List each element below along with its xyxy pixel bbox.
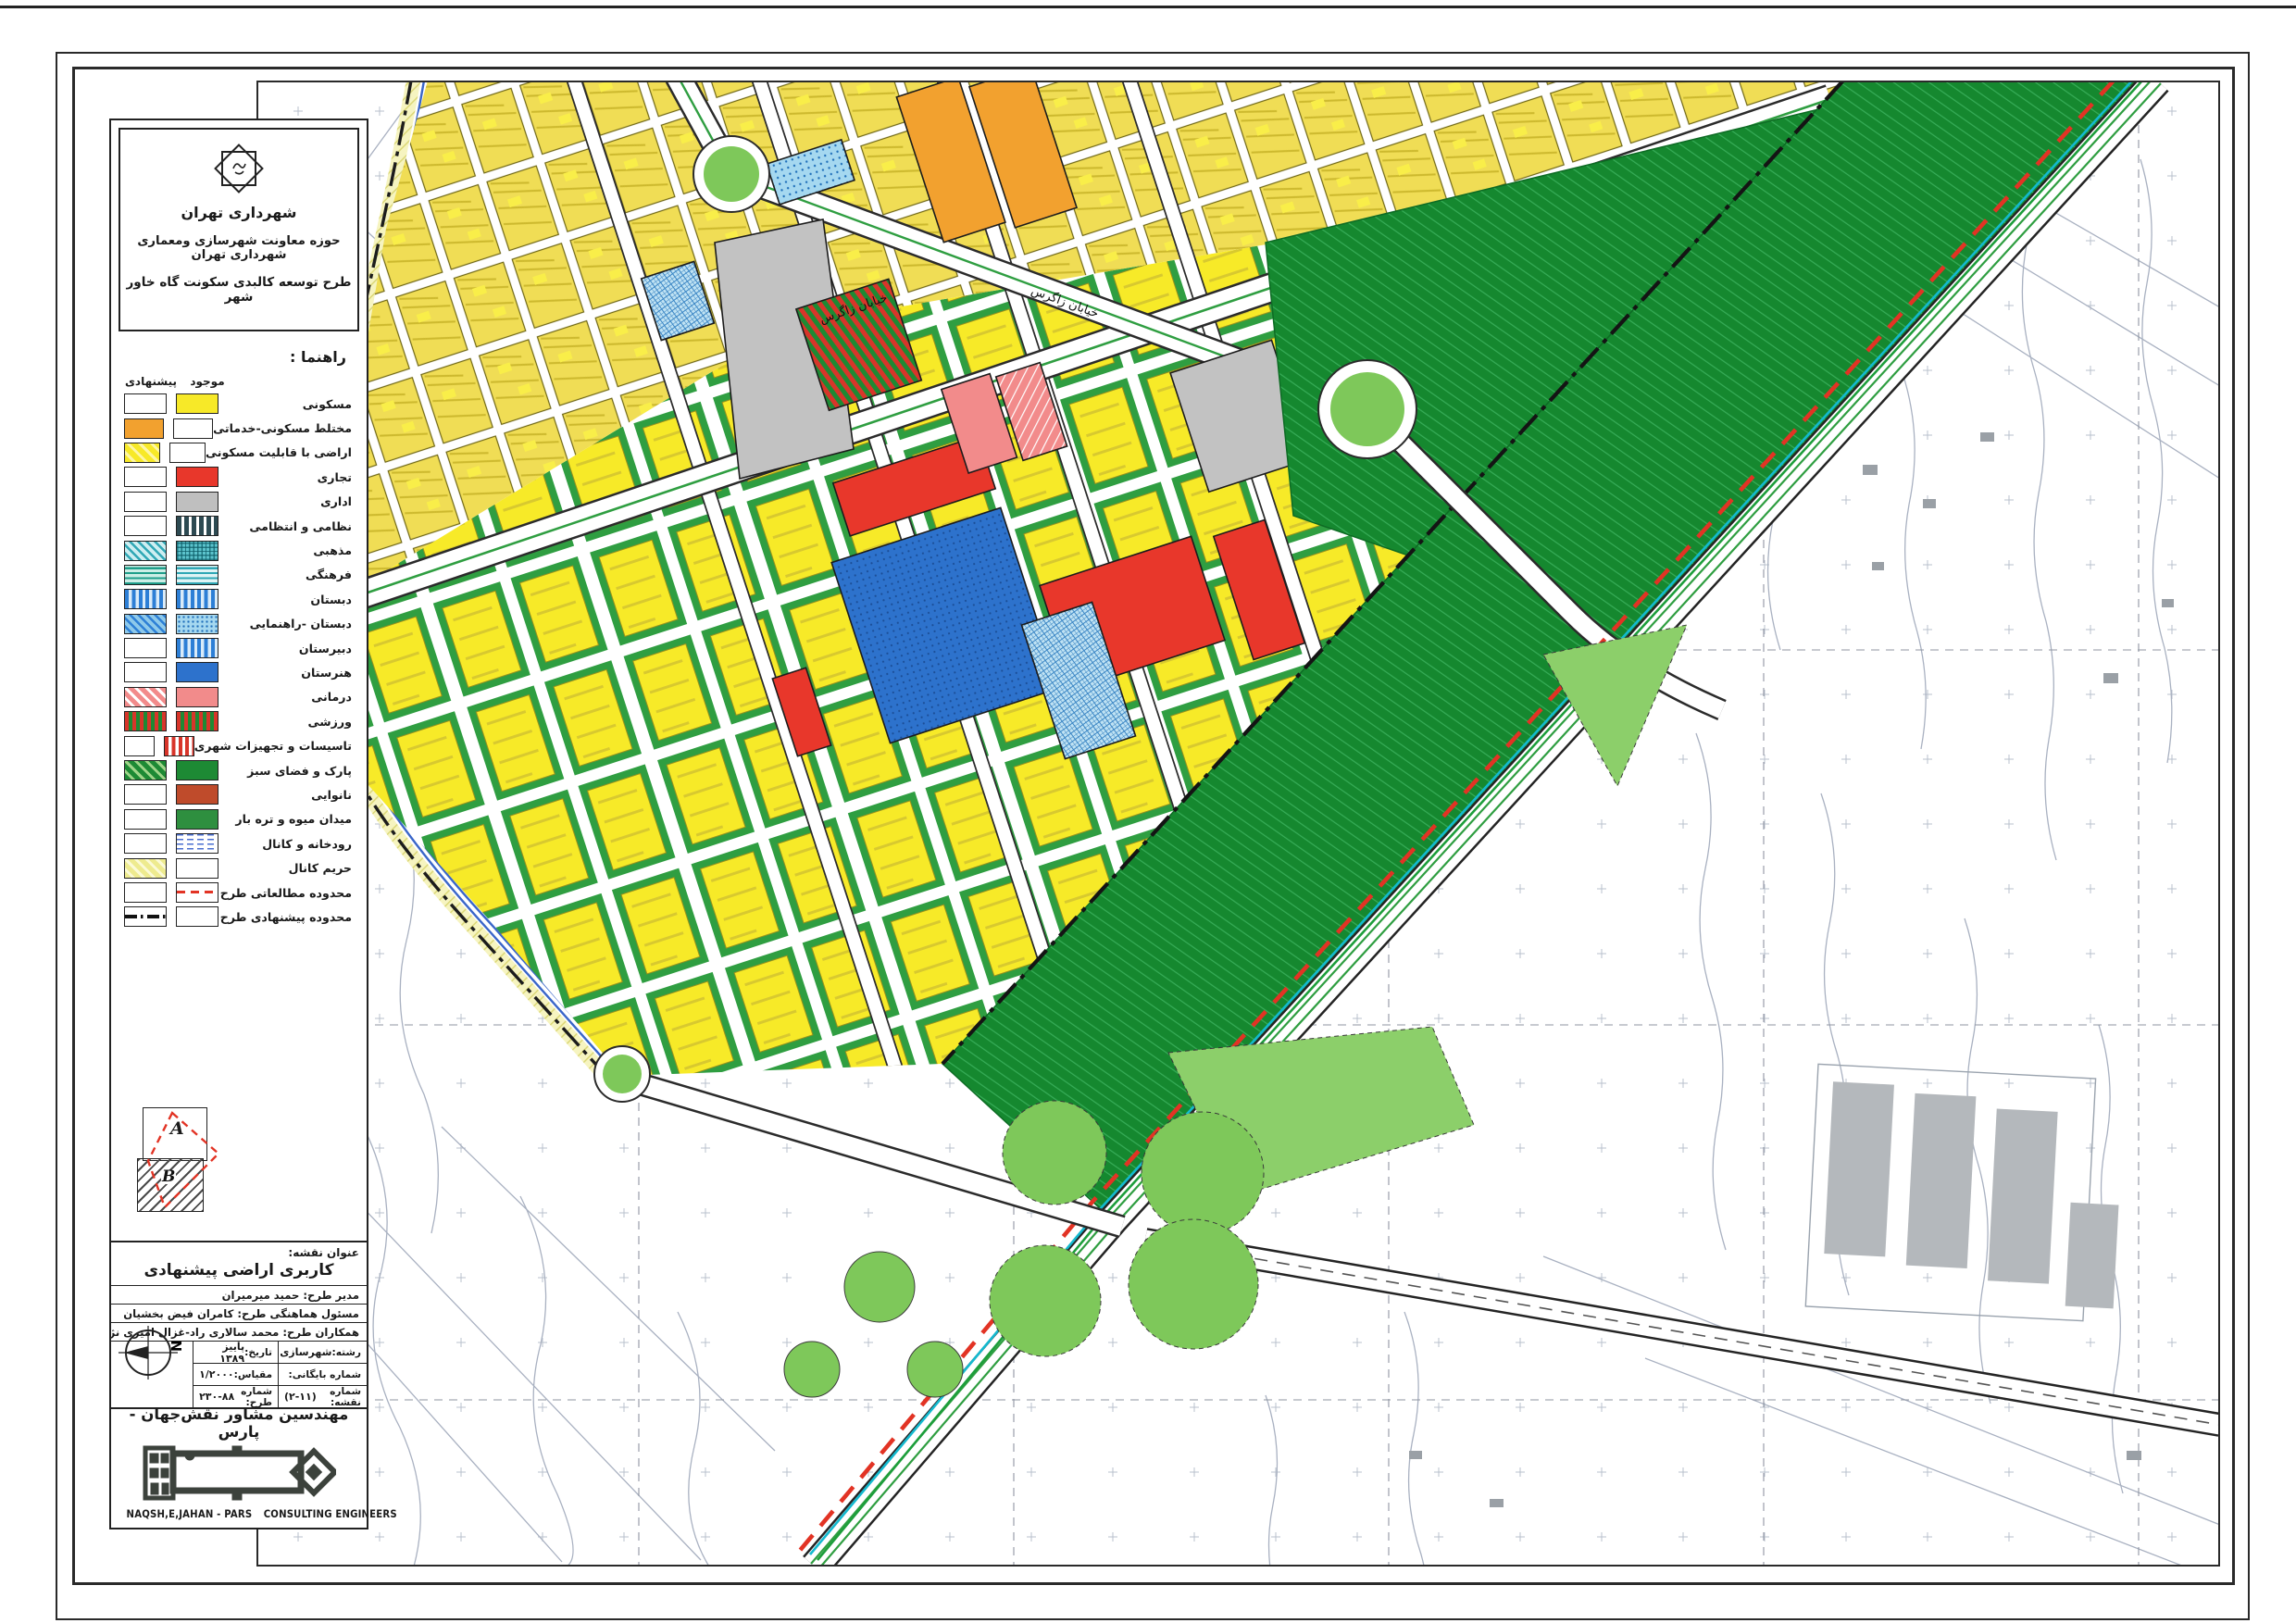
- legend-label: اداری: [218, 494, 356, 508]
- legend-row: میدان میوه و تره بار: [120, 807, 356, 831]
- legend-label: دبستان: [218, 593, 356, 606]
- legend-title: راهنما :: [120, 343, 356, 368]
- legend-swatch-existing: [176, 614, 218, 634]
- company-logo: [111, 1444, 367, 1507]
- map-border: [256, 81, 2220, 1567]
- tehran-municipality-logo: [120, 139, 357, 202]
- legend-row: محدوده پیشنهادی طرح: [120, 905, 356, 929]
- legend-swatch-proposed: [124, 882, 167, 903]
- legend-swatch-existing: [176, 516, 218, 536]
- plan-name: طرح توسعه کالبدی سکونت گاه خاور شهر: [120, 275, 357, 305]
- legend-label: ورزشی: [218, 715, 356, 729]
- legend-label: مذهبی: [218, 543, 356, 557]
- legend-row: پارک و فضای سبز: [120, 758, 356, 782]
- legend-swatch-proposed: [124, 736, 155, 756]
- legend-swatch-existing: [176, 784, 218, 805]
- legend-swatch-proposed: [124, 858, 167, 879]
- scanned-map-sheet: 3934200 3934600 550800: [0, 0, 2296, 1623]
- legend-label: محدوده پیشنهادی طرح: [218, 910, 356, 924]
- company-name-fa: مهندسین مشاور نقش‌جهان - پارس: [111, 1405, 367, 1441]
- legend-swatch-proposed: [124, 711, 167, 731]
- legend-swatch-proposed: [124, 492, 167, 512]
- legend-swatch-proposed: [124, 809, 167, 830]
- legend-swatch-proposed: [124, 687, 167, 707]
- legend-swatch-existing: [176, 638, 218, 658]
- legend-swatch-existing: [176, 565, 218, 585]
- legend-label: پارک و فضای سبز: [218, 764, 356, 778]
- scan-edge-line: [0, 6, 2296, 8]
- legend-swatch-proposed: [124, 418, 164, 439]
- legend-row: درمانی: [120, 685, 356, 709]
- legend-row: مذهبی: [120, 538, 356, 562]
- legend-row: رودخانه و کانال: [120, 831, 356, 855]
- legend-row: فرهنگی: [120, 563, 356, 587]
- legend-swatch-existing: [176, 882, 218, 903]
- legend-swatch-existing: [176, 662, 218, 682]
- legend-row: نانوایی: [120, 782, 356, 806]
- legend-label: حریم کانال: [218, 861, 356, 875]
- legend-row: مسکونی: [120, 392, 356, 416]
- legend-swatch-proposed: [124, 662, 167, 682]
- legend-row: اداری: [120, 490, 356, 514]
- legend-row: مختلط مسکونی-خدماتی: [120, 416, 356, 440]
- field-cell: رشته:شهرسازی: [278, 1342, 367, 1364]
- legend-label: نظامی و انتظامی: [218, 519, 356, 533]
- legend-label: نانوایی: [218, 788, 356, 802]
- legend-swatch-existing: [176, 809, 218, 830]
- legend-swatch-proposed: [124, 906, 167, 927]
- legend-swatch-proposed: [124, 784, 167, 805]
- date-cell: تاریخ:پاییز ۱۳۸۹: [193, 1342, 278, 1364]
- legend-label: مسکونی: [218, 397, 356, 411]
- legend-swatch-proposed: [124, 589, 167, 609]
- legend-swatch-existing: [176, 541, 218, 561]
- legend-row: دبستان: [120, 587, 356, 611]
- legend-swatch-proposed: [124, 760, 167, 780]
- legend-rows: مسکونیمختلط مسکونی-خدماتیاراضی با قابلیت…: [120, 392, 356, 930]
- legend-swatch-existing: [176, 687, 218, 707]
- legend-swatch-proposed: [124, 565, 167, 585]
- legend-label: تجاری: [218, 470, 356, 484]
- sheet-margin-panel: شهرداری تهران حوزه معاونت شهرسازی ومعمار…: [109, 119, 368, 1529]
- header-box: شهرداری تهران حوزه معاونت شهرسازی ومعمار…: [119, 128, 359, 331]
- company-name-en: NAQSH,E,JAHAN - PARSCONSULTING ENGINEERS: [127, 1507, 352, 1520]
- map-title: کاربری اراضی پیشنهادی: [119, 1261, 359, 1280]
- legend-swatch-existing: [164, 736, 194, 756]
- legend: راهنما : موجود پیشنهادی مسکونیمختلط مسکو…: [120, 343, 356, 930]
- location-inset: A B: [133, 1104, 235, 1217]
- legend-swatch-proposed: [124, 393, 167, 414]
- titleblock-row: مسئول هماهنگی طرح: کامران فیض بخشیان: [111, 1305, 367, 1323]
- company-block: مهندسین مشاور نقش‌جهان - پارس: [111, 1400, 367, 1529]
- legend-label: مختلط مسکونی-خدماتی: [213, 421, 356, 435]
- title-block: عنوان نقشه: کاربری اراضی پیشنهادی مدیر ط…: [111, 1241, 367, 1409]
- legend-swatch-proposed: [124, 833, 167, 854]
- legend-swatch-existing: [176, 492, 218, 512]
- legend-label: دبیرستان: [218, 642, 356, 655]
- legend-label: رودخانه و کانال: [218, 837, 356, 851]
- legend-row: دبستان -راهنمایی: [120, 612, 356, 636]
- legend-swatch-proposed: [124, 614, 167, 634]
- legend-label: دبستان -راهنمایی: [218, 617, 356, 630]
- legend-row: حریم کانال: [120, 855, 356, 880]
- legend-swatch-existing: [173, 418, 213, 439]
- legend-label: فرهنگی: [218, 568, 356, 581]
- org-name: شهرداری تهران: [120, 204, 357, 221]
- legend-label: اراضی با قابلیت مسکونی: [206, 445, 356, 459]
- compass-letter: N: [168, 1340, 184, 1352]
- archive-cell: شماره بایگانی:: [278, 1364, 367, 1386]
- legend-swatch-existing: [176, 589, 218, 609]
- map-title-label: عنوان نقشه:: [119, 1246, 359, 1259]
- legend-swatch-existing: [176, 833, 218, 854]
- legend-swatch-proposed: [124, 443, 160, 463]
- legend-swatch-existing: [169, 443, 206, 463]
- legend-row: ورزشی: [120, 709, 356, 733]
- legend-col-existing: موجود: [181, 375, 233, 388]
- legend-swatch-existing: [176, 760, 218, 780]
- legend-label: هنرستان: [218, 666, 356, 680]
- legend-label: میدان میوه و تره بار: [218, 812, 356, 826]
- scale-cell: مقیاس:۱/۲۰۰۰: [193, 1364, 278, 1386]
- legend-swatch-proposed: [124, 516, 167, 536]
- legend-row: تجاری: [120, 465, 356, 489]
- legend-column-headers: موجود پیشنهادی: [120, 375, 356, 388]
- legend-row: دبیرستان: [120, 636, 356, 660]
- legend-row: نظامی و انتظامی: [120, 514, 356, 538]
- legend-row: هنرستان: [120, 660, 356, 684]
- legend-swatch-existing: [176, 467, 218, 487]
- legend-swatch-existing: [176, 711, 218, 731]
- legend-row: محدوده مطالعاتی طرح: [120, 880, 356, 905]
- compass: N: [111, 1342, 193, 1363]
- org-dept: حوزه معاونت شهرسازی ومعماری شهرداری تهرا…: [120, 234, 357, 262]
- legend-col-proposed: پیشنهادی: [120, 375, 181, 388]
- legend-swatch-existing: [176, 858, 218, 879]
- legend-swatch-existing: [176, 393, 218, 414]
- inset-boundary-shape: [133, 1104, 235, 1217]
- legend-label: محدوده مطالعاتی طرح: [218, 886, 356, 900]
- legend-label: تاسیسات و تجهیزات شهری: [194, 739, 356, 753]
- legend-row: اراضی با قابلیت مسکونی: [120, 441, 356, 465]
- legend-swatch-proposed: [124, 467, 167, 487]
- legend-label: درمانی: [218, 690, 356, 704]
- legend-swatch-proposed: [124, 638, 167, 658]
- legend-swatch-proposed: [124, 541, 167, 561]
- titleblock-row: مدیر طرح: حمید میرمیران: [111, 1286, 367, 1305]
- legend-row: تاسیسات و تجهیزات شهری: [120, 733, 356, 757]
- legend-swatch-existing: [176, 906, 218, 927]
